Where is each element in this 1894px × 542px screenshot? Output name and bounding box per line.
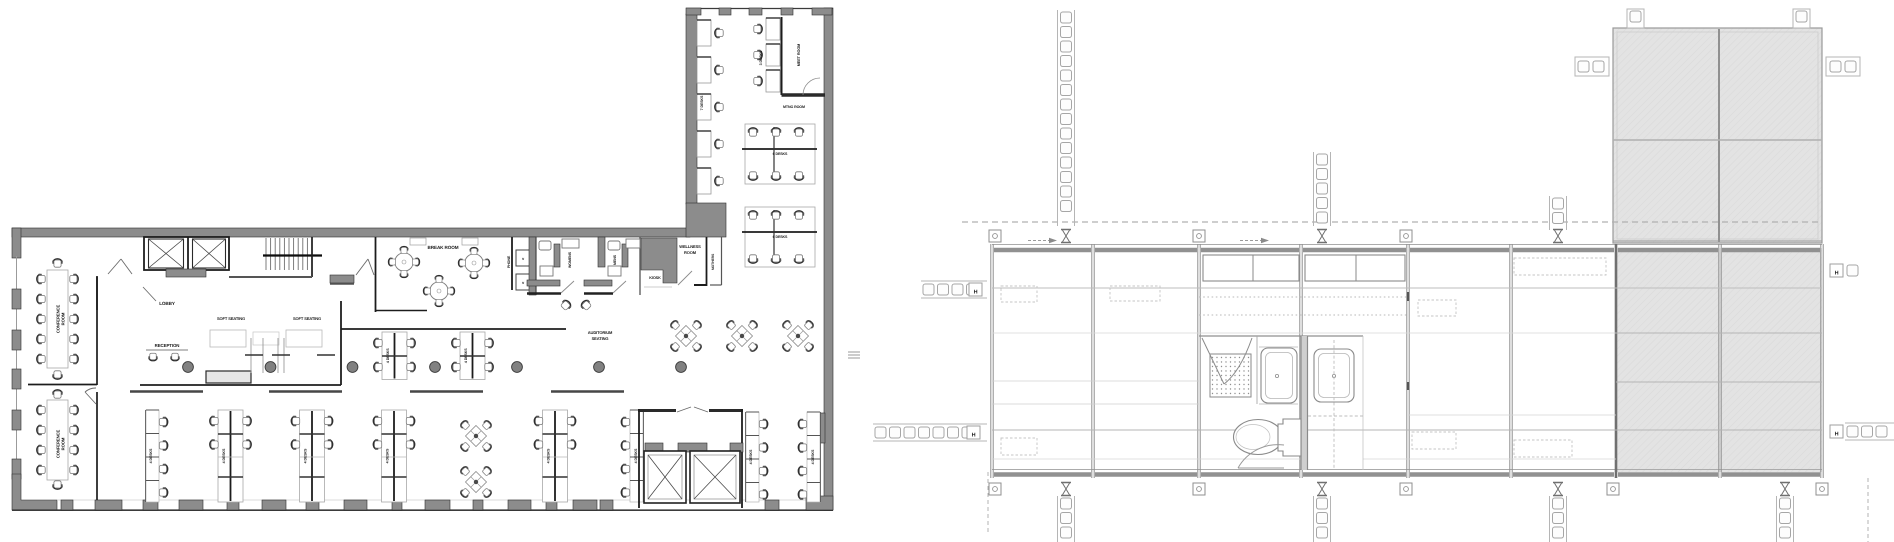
svg-text:MENS: MENS: [613, 254, 617, 265]
svg-text:4 DESKS: 4 DESKS: [749, 449, 753, 464]
svg-text:WELLNESS: WELLNESS: [679, 244, 701, 249]
svg-text:4 DESKS: 4 DESKS: [547, 448, 551, 463]
svg-text:4 DESKS: 4 DESKS: [222, 448, 226, 463]
svg-text:H: H: [974, 290, 978, 296]
svg-text:4 DESKS: 4 DESKS: [634, 448, 638, 463]
svg-text:SOFT SEATING: SOFT SEATING: [293, 316, 321, 321]
svg-text:SEATING: SEATING: [592, 336, 609, 341]
svg-text:4 DESKS: 4 DESKS: [386, 448, 390, 463]
svg-text:MEET ROOM: MEET ROOM: [797, 44, 801, 67]
svg-text:6 DESKS: 6 DESKS: [773, 152, 788, 156]
svg-text:7 DESKS: 7 DESKS: [700, 95, 704, 110]
svg-text:MOTHERS: MOTHERS: [711, 253, 715, 270]
svg-text:BREAK ROOM: BREAK ROOM: [428, 245, 459, 250]
svg-text:4 DESKS: 4 DESKS: [304, 448, 308, 463]
svg-text:WOMENS: WOMENS: [568, 251, 572, 268]
svg-text:H: H: [972, 433, 976, 439]
svg-text:RECEPTION: RECEPTION: [155, 343, 180, 348]
svg-text:6 DESKS: 6 DESKS: [773, 235, 788, 239]
svg-text:LOBBY: LOBBY: [159, 301, 175, 306]
svg-text:4 DESKS: 4 DESKS: [386, 348, 390, 363]
svg-text:H: H: [1835, 432, 1839, 438]
svg-text:MTNG ROOM: MTNG ROOM: [783, 105, 805, 109]
svg-text:PHONE: PHONE: [507, 255, 511, 268]
svg-text:4 DESKS: 4 DESKS: [811, 449, 815, 464]
svg-text:4 DESKS: 4 DESKS: [149, 448, 153, 463]
svg-text:ROOM: ROOM: [61, 437, 66, 450]
svg-text:AUDITORIUM: AUDITORIUM: [588, 330, 613, 335]
svg-text:ROOM: ROOM: [61, 312, 66, 325]
svg-text:KIOSK: KIOSK: [649, 276, 661, 280]
svg-text:SOFT SEATING: SOFT SEATING: [217, 316, 245, 321]
svg-text:H: H: [1835, 271, 1839, 277]
svg-text:ROOM: ROOM: [684, 250, 697, 255]
svg-text:4 DESKS: 4 DESKS: [464, 348, 468, 363]
svg-text:3 DESKS: 3 DESKS: [759, 50, 763, 65]
